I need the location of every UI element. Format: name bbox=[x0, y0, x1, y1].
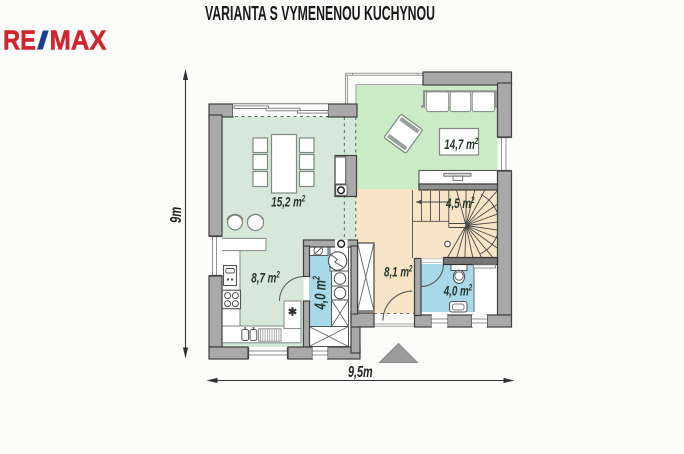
svg-text:9,5m: 9,5m bbox=[348, 363, 373, 380]
svg-text:MAX: MAX bbox=[50, 25, 107, 56]
svg-text:RE: RE bbox=[3, 25, 36, 56]
svg-text:✱: ✱ bbox=[288, 307, 297, 319]
svg-text:VARIANTA S VYMENENOU KUCHYNOU: VARIANTA S VYMENENOU KUCHYNOU bbox=[205, 3, 435, 25]
svg-text:8,1 m2: 8,1 m2 bbox=[384, 263, 413, 280]
svg-text:14,7 m2: 14,7 m2 bbox=[444, 136, 479, 153]
svg-text:15,2 m2: 15,2 m2 bbox=[271, 193, 306, 210]
svg-text:4,5 m2: 4,5 m2 bbox=[445, 195, 475, 212]
svg-text:4,0 m2: 4,0 m2 bbox=[443, 282, 473, 299]
svg-text:8,7 m2: 8,7 m2 bbox=[251, 269, 280, 286]
svg-text:4,0 m2: 4,0 m2 bbox=[310, 276, 329, 310]
svg-text:9m: 9m bbox=[167, 207, 184, 223]
